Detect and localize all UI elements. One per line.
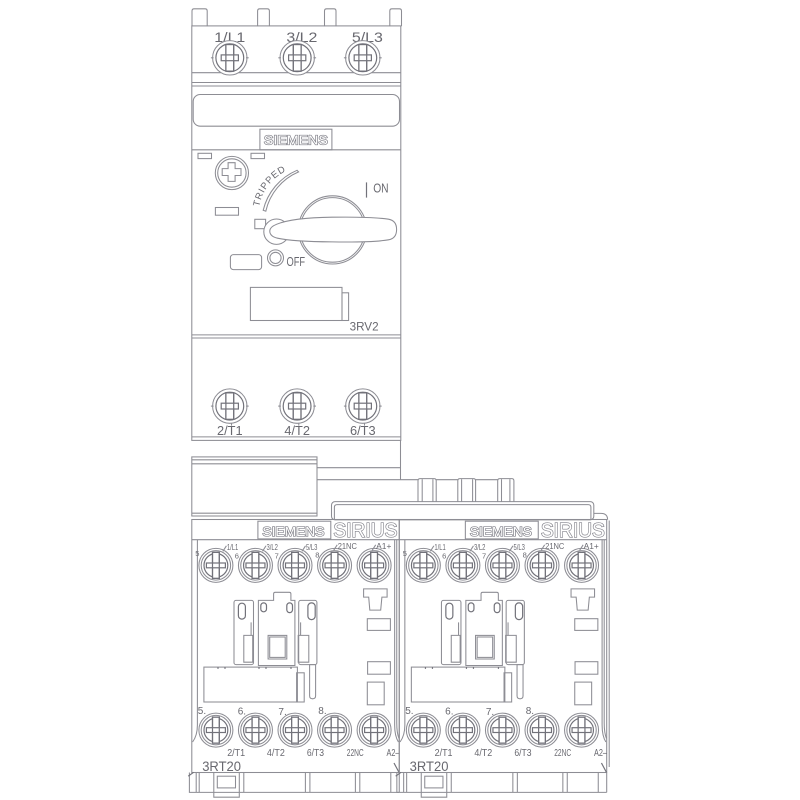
svg-text:5.: 5.	[198, 706, 206, 717]
svg-text:5: 5	[195, 549, 199, 558]
svg-text:7: 7	[275, 552, 279, 561]
svg-text:SIEMENS: SIEMENS	[264, 133, 328, 148]
svg-text:3RV2: 3RV2	[350, 319, 379, 333]
svg-text:8: 8	[315, 551, 319, 560]
svg-text:6.: 6.	[238, 707, 246, 718]
svg-text:OFF: OFF	[287, 254, 306, 269]
svg-text:A2–: A2–	[387, 748, 400, 759]
svg-text:2/T1: 2/T1	[217, 423, 243, 438]
svg-text:7.: 7.	[278, 707, 286, 718]
svg-text:22NC: 22NC	[347, 748, 364, 759]
svg-text:4/T2: 4/T2	[267, 748, 285, 759]
svg-text:6: 6	[235, 551, 239, 560]
svg-text:6/T3: 6/T3	[307, 748, 325, 759]
svg-text:4/T2: 4/T2	[284, 423, 310, 438]
svg-text:ON: ON	[373, 181, 388, 196]
svg-text:3RT20: 3RT20	[202, 758, 241, 774]
svg-text:SIRIUS: SIRIUS	[333, 520, 397, 542]
svg-text:SIEMENS: SIEMENS	[262, 525, 324, 539]
svg-text:6/T3: 6/T3	[350, 423, 376, 438]
svg-text:A1+: A1+	[376, 542, 392, 551]
svg-text:21NC: 21NC	[338, 542, 357, 551]
svg-text:3/L2: 3/L2	[267, 543, 279, 552]
svg-text:8.: 8.	[318, 706, 326, 717]
